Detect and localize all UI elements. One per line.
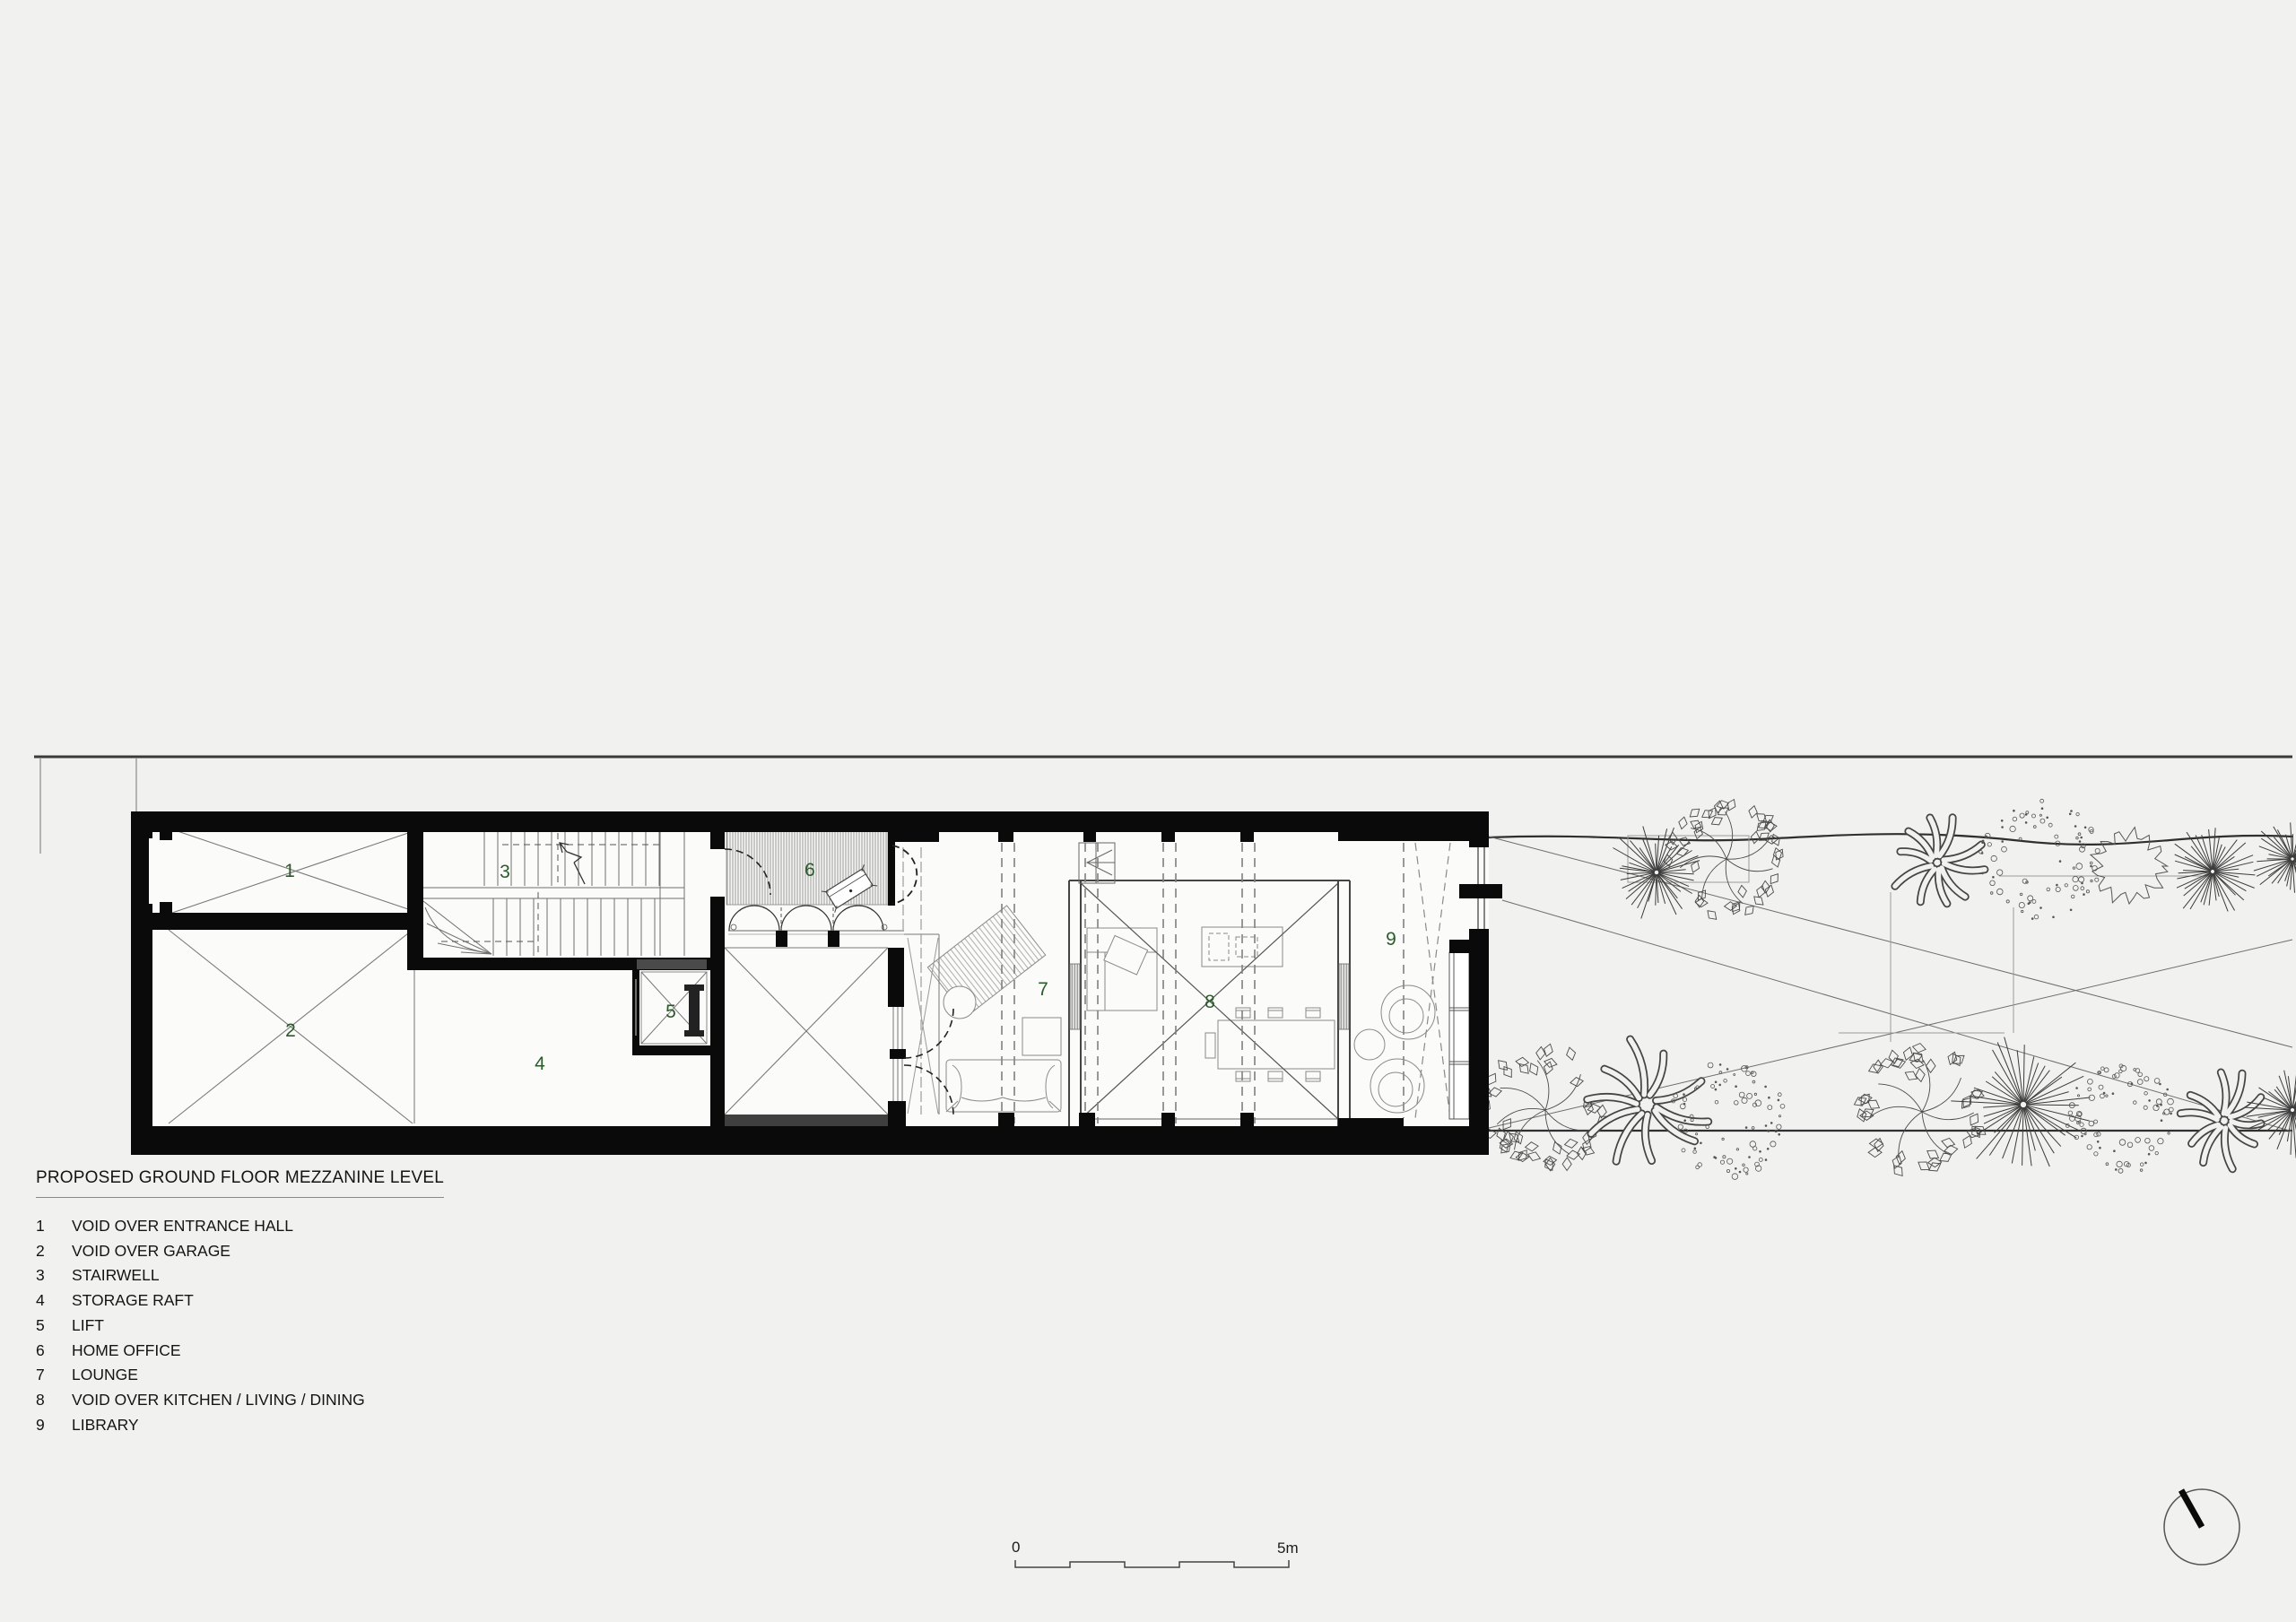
tv-unit — [1022, 1018, 1061, 1055]
legend-label: STORAGE RAFT — [72, 1291, 194, 1309]
legend-item-9: 9LIBRARY — [36, 1413, 365, 1438]
legend-label: HOME OFFICE — [72, 1341, 181, 1359]
legend-number: 4 — [36, 1288, 72, 1314]
garden-tree-leafy — [1478, 1043, 1610, 1173]
room-label-7: 7 — [1038, 979, 1048, 1000]
legend-number: 5 — [36, 1314, 72, 1339]
legend-number: 7 — [36, 1363, 72, 1388]
legend-label: STAIRWELL — [72, 1266, 160, 1284]
garden-tree-radial — [1951, 1037, 2090, 1167]
legend-number: 8 — [36, 1388, 72, 1413]
legend-number: 3 — [36, 1263, 72, 1288]
legend-item-6: 6HOME OFFICE — [36, 1339, 365, 1364]
garden-tree-radial — [2254, 822, 2296, 894]
legend-item-7: 7LOUNGE — [36, 1363, 365, 1388]
garden-tree-leafy — [1663, 798, 1786, 923]
north-arrow-icon — [2164, 1489, 2239, 1565]
legend-item-4: 4STORAGE RAFT — [36, 1288, 365, 1314]
garden-tree-coral — [2180, 1072, 2261, 1169]
left-wall-window-notch — [149, 828, 172, 916]
room-legend: 1VOID OVER ENTRANCE HALL 2VOID OVER GARA… — [36, 1214, 365, 1437]
room-label-2: 2 — [285, 1020, 296, 1041]
garden-tree-radial — [2175, 828, 2256, 911]
door-mullion — [776, 931, 787, 947]
legend-item-8: 8VOID OVER KITCHEN / LIVING / DINING — [36, 1388, 365, 1413]
door-mullion — [828, 931, 839, 947]
garden-tree-shrub — [1979, 799, 2100, 919]
room-label-1: 1 — [284, 861, 295, 881]
legend-item-1: 1VOID OVER ENTRANCE HALL — [36, 1214, 365, 1239]
room-label-5: 5 — [665, 1002, 676, 1022]
room-label-3: 3 — [500, 862, 510, 882]
legend-number: 1 — [36, 1214, 72, 1239]
page-title: PROPOSED GROUND FLOOR MEZZANINE LEVEL — [36, 1168, 444, 1198]
legend-label: LOUNGE — [72, 1366, 138, 1383]
scale-end-label: 5m — [1277, 1540, 1299, 1557]
legend-label: VOID OVER KITCHEN / LIVING / DINING — [72, 1391, 365, 1409]
scale-start-label: 0 — [1012, 1539, 1020, 1556]
legend-item-2: 2VOID OVER GARAGE — [36, 1239, 365, 1264]
legend-item-3: 3STAIRWELL — [36, 1263, 365, 1288]
garden-tree-leafy — [1852, 1042, 1988, 1179]
sofa — [946, 1060, 1061, 1112]
legend-number: 9 — [36, 1413, 72, 1438]
scale-bar: 0 5m — [1012, 1539, 1299, 1567]
bookshelf — [1449, 952, 1469, 1119]
garden-tree-coral — [1587, 1039, 1709, 1161]
room-label-8: 8 — [1205, 992, 1215, 1012]
courtyard-sill — [720, 1115, 891, 1126]
legend-number: 2 — [36, 1239, 72, 1264]
room-label-4: 4 — [535, 1054, 545, 1074]
legend-item-5: 5LIFT — [36, 1314, 365, 1339]
title-block: PROPOSED GROUND FLOOR MEZZANINE LEVEL — [36, 1168, 444, 1198]
legend-label: LIBRARY — [72, 1416, 139, 1434]
architectural-drawing-sheet: { "page": { "background": "#f1f1f0", "ru… — [0, 0, 2296, 1622]
garden-tree-wavy — [2091, 828, 2168, 904]
legend-label: VOID OVER ENTRANCE HALL — [72, 1217, 293, 1235]
garden-tree-coral — [1895, 818, 1985, 904]
room-label-6: 6 — [804, 860, 815, 880]
side-table — [944, 986, 976, 1019]
legend-label: VOID OVER GARAGE — [72, 1242, 230, 1260]
legend-number: 6 — [36, 1339, 72, 1364]
room-label-9: 9 — [1386, 929, 1396, 950]
legend-label: LIFT — [72, 1316, 104, 1334]
